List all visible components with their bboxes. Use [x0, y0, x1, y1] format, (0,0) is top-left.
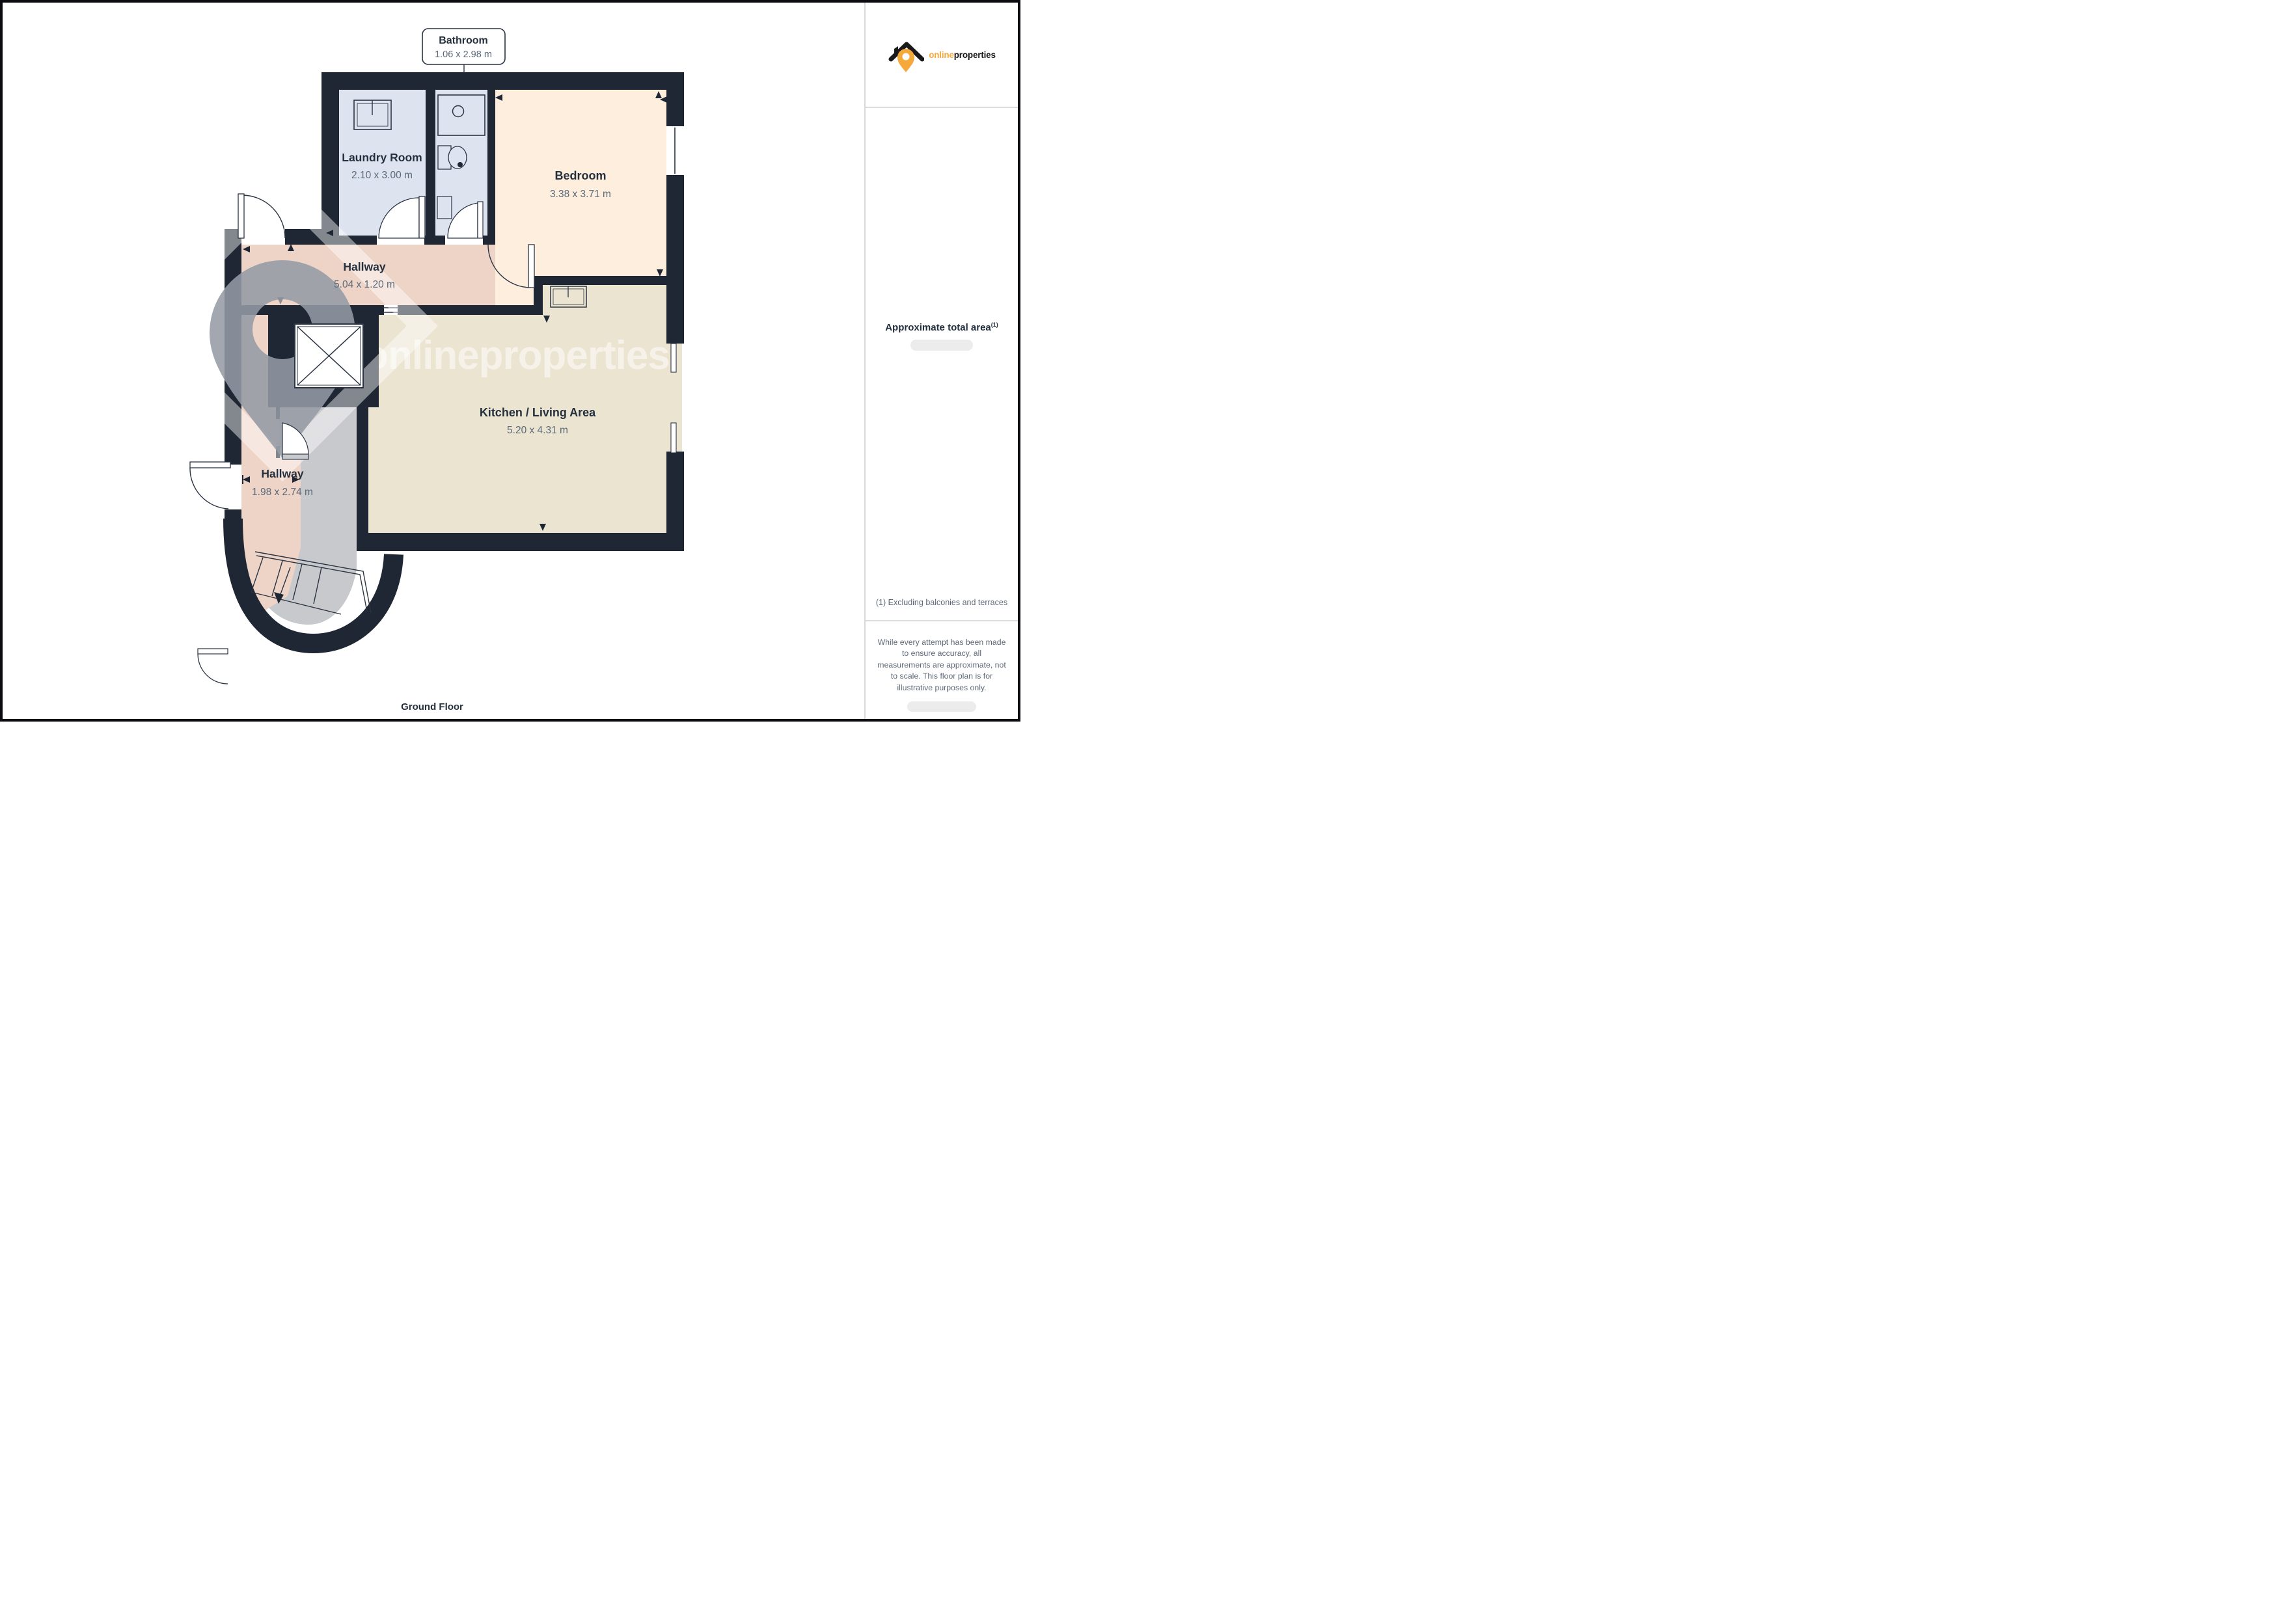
hallway-bottom-name: Hallway: [261, 467, 303, 480]
bedroom-dims: 3.38 x 3.71 m: [550, 189, 611, 200]
bedroom-window: [666, 126, 684, 175]
hallway-bottom-dims: 1.98 x 2.74 m: [252, 487, 313, 498]
kitchen-dims: 5.20 x 4.31 m: [507, 425, 568, 436]
logo-word-online: online: [929, 50, 954, 60]
total-area-title: Approximate total area(1): [885, 321, 998, 333]
floor-title: Ground Floor: [401, 701, 463, 712]
hallway-top-name: Hallway: [343, 260, 385, 273]
disclaimer-section: While every attempt has been made to ens…: [866, 621, 1018, 719]
elevator: [295, 324, 363, 388]
logo-word-properties: properties: [954, 50, 996, 60]
kitchen-sink: [551, 286, 586, 307]
hallway-top-dims: 5.04 x 1.20 m: [334, 279, 395, 290]
total-area-value-placeholder: [910, 340, 973, 351]
bathroom-callout: Bathroom 1.06 x 2.98 m: [422, 29, 505, 73]
bathroom-callout-title: Bathroom: [439, 35, 488, 46]
entrance-door-left: [190, 462, 230, 509]
bedroom-name: Bedroom: [554, 169, 606, 182]
floorplan-canvas: onlineproperties: [3, 3, 864, 719]
total-area-title-text: Approximate total area: [885, 322, 991, 333]
logo: onlineproperties: [866, 3, 1018, 107]
total-area-footnote-marker: (1): [991, 321, 998, 328]
laundry-dims: 2.10 x 3.00 m: [351, 170, 413, 181]
toilet: [438, 146, 467, 169]
floorplan-page: onlineproperties: [0, 0, 1020, 722]
bay-door: [198, 649, 228, 684]
disclaimer-text: While every attempt has been made to ens…: [875, 637, 1008, 694]
bathroom-callout-dims: 1.06 x 2.98 m: [435, 49, 492, 60]
laundry-name: Laundry Room: [342, 151, 422, 164]
kitchen-name: Kitchen / Living Area: [480, 406, 596, 419]
logo-house-pin-icon: [888, 36, 924, 74]
disclaimer-placeholder: [907, 701, 976, 712]
total-area-section: Approximate total area(1) (1) Excluding …: [866, 108, 1018, 620]
logo-wordmark: onlineproperties: [929, 50, 996, 60]
info-sidebar: onlineproperties Approximate total area(…: [864, 3, 1018, 719]
area-footnote: (1) Excluding balconies and terraces: [869, 598, 1014, 607]
